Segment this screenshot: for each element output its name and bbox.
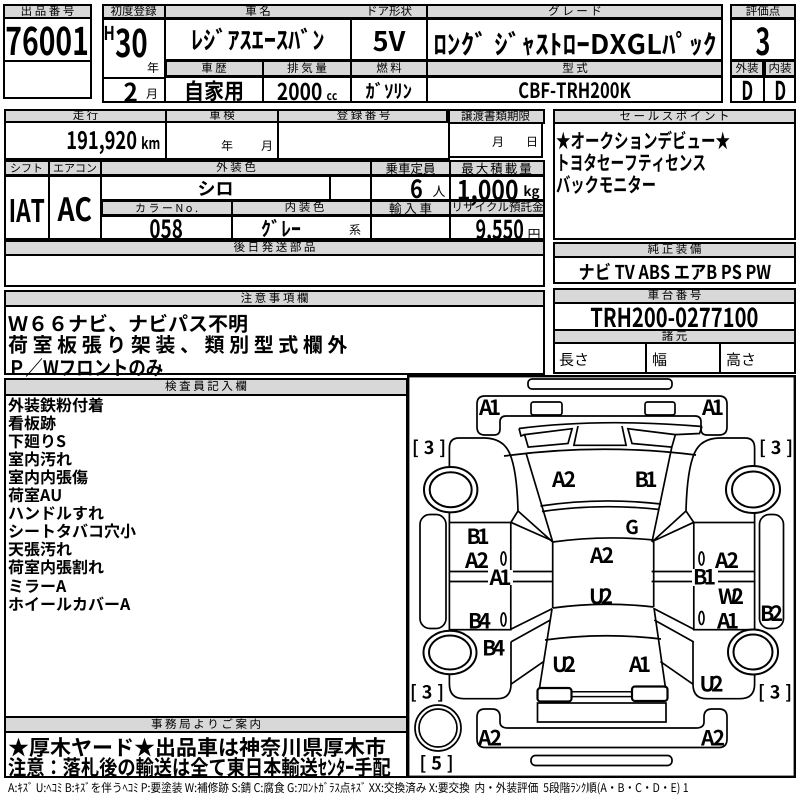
svg-text:B4: B4: [482, 633, 505, 663]
svg-text:A2: A2: [714, 545, 739, 575]
svg-text:A1: A1: [716, 606, 739, 636]
svg-text:B1: B1: [635, 464, 658, 494]
svg-text:A2: A2: [551, 464, 576, 494]
svg-text:A1: A1: [628, 649, 651, 679]
svg-text:A1: A1: [489, 562, 512, 592]
svg-text:A2: A2: [464, 545, 489, 575]
svg-text:[ 3 ]: [ 3 ]: [412, 434, 446, 460]
svg-text:[ 3 ]: [ 3 ]: [410, 679, 444, 705]
svg-text:[ 3 ]: [ 3 ]: [758, 679, 792, 705]
svg-text:U2: U2: [552, 649, 576, 679]
svg-text:U2: U2: [700, 669, 724, 699]
svg-text:A1: A1: [478, 392, 501, 422]
svg-text:G: G: [625, 513, 639, 540]
svg-text:[ 3 ]: [ 3 ]: [759, 434, 793, 460]
svg-text:A2: A2: [477, 723, 502, 753]
svg-text:U2: U2: [589, 581, 613, 611]
svg-text:B1: B1: [693, 562, 716, 592]
svg-text:A2: A2: [589, 540, 614, 570]
svg-text:A1: A1: [701, 392, 724, 422]
svg-text:A2: A2: [700, 723, 725, 753]
svg-text:[ 5 ]: [ 5 ]: [420, 750, 454, 776]
svg-text:B2: B2: [760, 598, 783, 628]
svg-text:B4: B4: [468, 606, 491, 636]
